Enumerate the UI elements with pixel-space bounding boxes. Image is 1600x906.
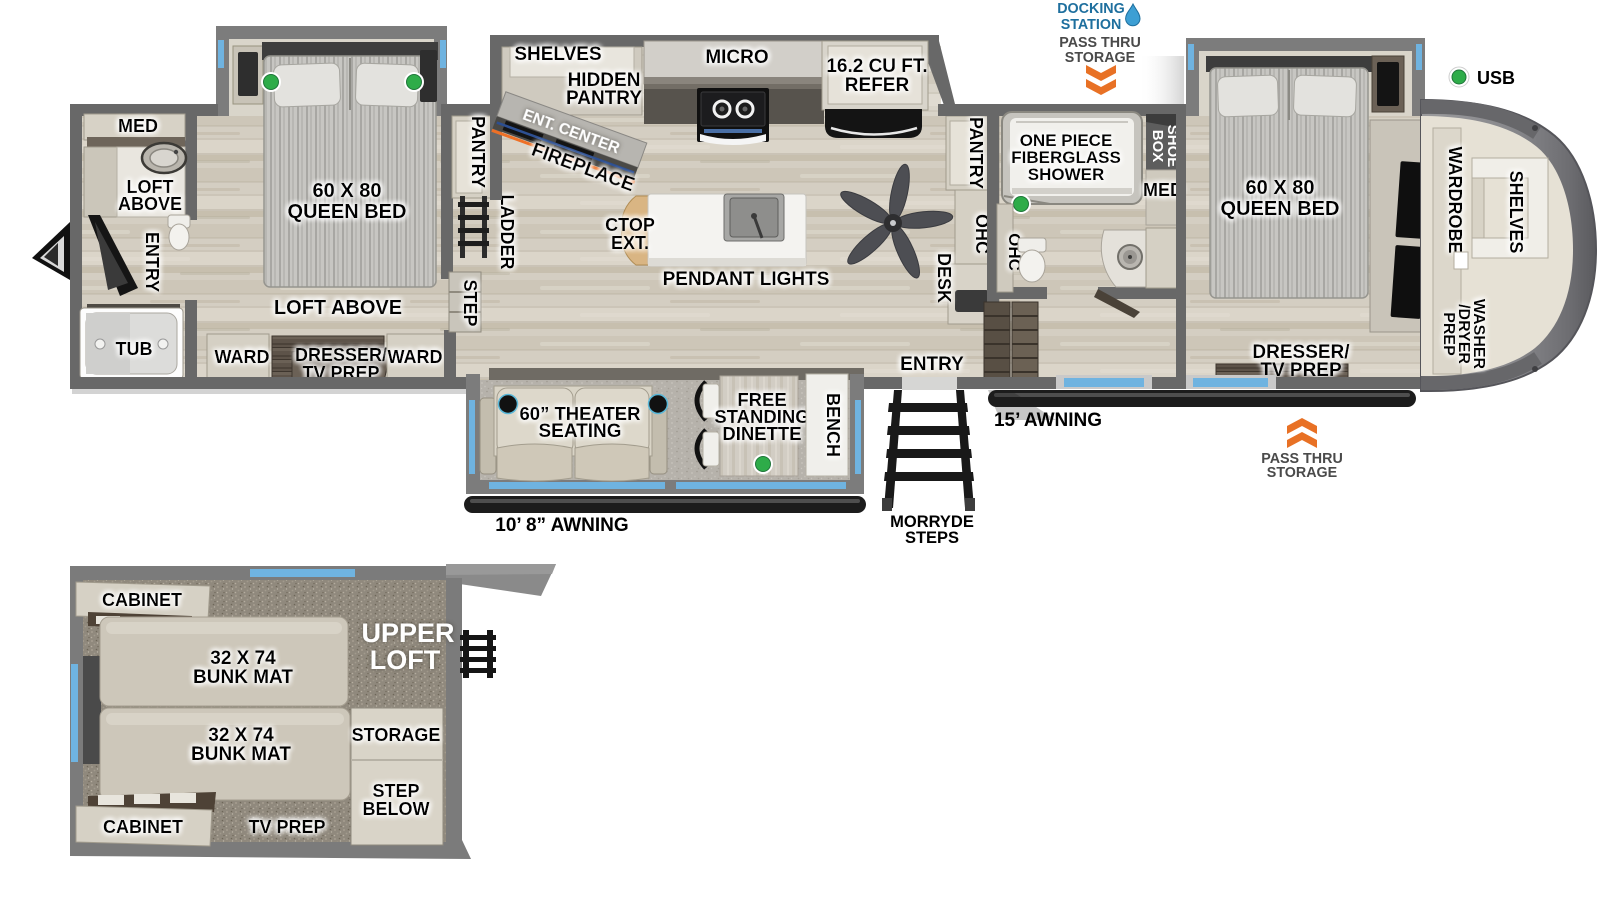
svg-text:ENTRY: ENTRY: [900, 354, 964, 375]
svg-text:SHELVES: SHELVES: [1506, 171, 1526, 254]
svg-text:CABINET: CABINET: [103, 817, 183, 837]
svg-text:STEP: STEP: [460, 279, 480, 326]
svg-text:SHELVES: SHELVES: [514, 44, 601, 65]
svg-text:CABINET: CABINET: [102, 590, 182, 610]
svg-text:QUEEN BED: QUEEN BED: [1221, 198, 1340, 220]
svg-text:TUB: TUB: [116, 339, 153, 359]
svg-text:STEP: STEP: [372, 781, 419, 801]
svg-text:BOX: BOX: [1149, 130, 1166, 163]
svg-text:PENDANT LIGHTS: PENDANT LIGHTS: [663, 269, 830, 290]
svg-text:WARD: WARD: [215, 347, 270, 367]
svg-text:/DRYER: /DRYER: [1455, 304, 1472, 364]
svg-text:EXT.: EXT.: [611, 233, 649, 253]
svg-text:60 X 80: 60 X 80: [313, 180, 382, 202]
svg-text:10’ 8” AWNING: 10’ 8” AWNING: [495, 515, 628, 536]
svg-text:PASS THRU: PASS THRU: [1059, 35, 1141, 51]
svg-text:PREP: PREP: [1440, 312, 1457, 356]
svg-text:UPPER: UPPER: [361, 618, 454, 648]
svg-text:DRESSER/: DRESSER/: [295, 345, 387, 365]
svg-text:BUNK MAT: BUNK MAT: [191, 744, 291, 765]
svg-text:BUNK MAT: BUNK MAT: [193, 667, 293, 688]
svg-text:32 X 74: 32 X 74: [208, 725, 274, 746]
svg-text:WARDROBE: WARDROBE: [1445, 147, 1465, 254]
svg-text:STEPS: STEPS: [905, 529, 959, 547]
svg-text:16.2 CU FT.: 16.2 CU FT.: [826, 56, 927, 77]
svg-text:SHOWER: SHOWER: [1028, 165, 1105, 184]
svg-text:BENCH: BENCH: [823, 393, 843, 457]
svg-text:STORAGE: STORAGE: [1267, 465, 1337, 481]
svg-text:32 X 74: 32 X 74: [210, 648, 276, 669]
svg-text:REFER: REFER: [845, 75, 910, 96]
svg-text:TV PREP: TV PREP: [248, 817, 325, 837]
svg-text:WASHER: WASHER: [1470, 299, 1487, 370]
svg-text:STORAGE: STORAGE: [352, 725, 441, 745]
svg-text:CTOP: CTOP: [605, 215, 655, 235]
svg-text:STORAGE: STORAGE: [1065, 50, 1135, 66]
svg-text:QUEEN BED: QUEEN BED: [288, 201, 407, 223]
svg-text:LOFT ABOVE: LOFT ABOVE: [274, 297, 402, 319]
svg-text:BELOW: BELOW: [363, 799, 430, 819]
svg-text:LADDER: LADDER: [497, 195, 517, 270]
svg-text:STATION: STATION: [1061, 17, 1122, 33]
svg-text:MED: MED: [118, 116, 158, 136]
svg-text:DINETTE: DINETTE: [722, 423, 801, 444]
svg-text:ENTRY: ENTRY: [142, 232, 162, 292]
svg-text:PANTRY: PANTRY: [566, 88, 642, 109]
svg-text:PANTRY: PANTRY: [966, 117, 986, 189]
svg-text:WARD: WARD: [388, 347, 443, 367]
svg-text:SEATING: SEATING: [538, 421, 621, 442]
svg-text:USB: USB: [1477, 68, 1515, 88]
svg-text:60 X 80: 60 X 80: [1246, 177, 1315, 199]
svg-text:DOCKING: DOCKING: [1057, 1, 1125, 17]
svg-text:15’ AWNING: 15’ AWNING: [994, 410, 1102, 431]
svg-text:ABOVE: ABOVE: [118, 194, 182, 214]
svg-text:MICRO: MICRO: [705, 47, 768, 68]
svg-text:DESK: DESK: [934, 253, 954, 303]
svg-text:LOFT: LOFT: [370, 645, 441, 675]
svg-text:PANTRY: PANTRY: [468, 116, 488, 188]
